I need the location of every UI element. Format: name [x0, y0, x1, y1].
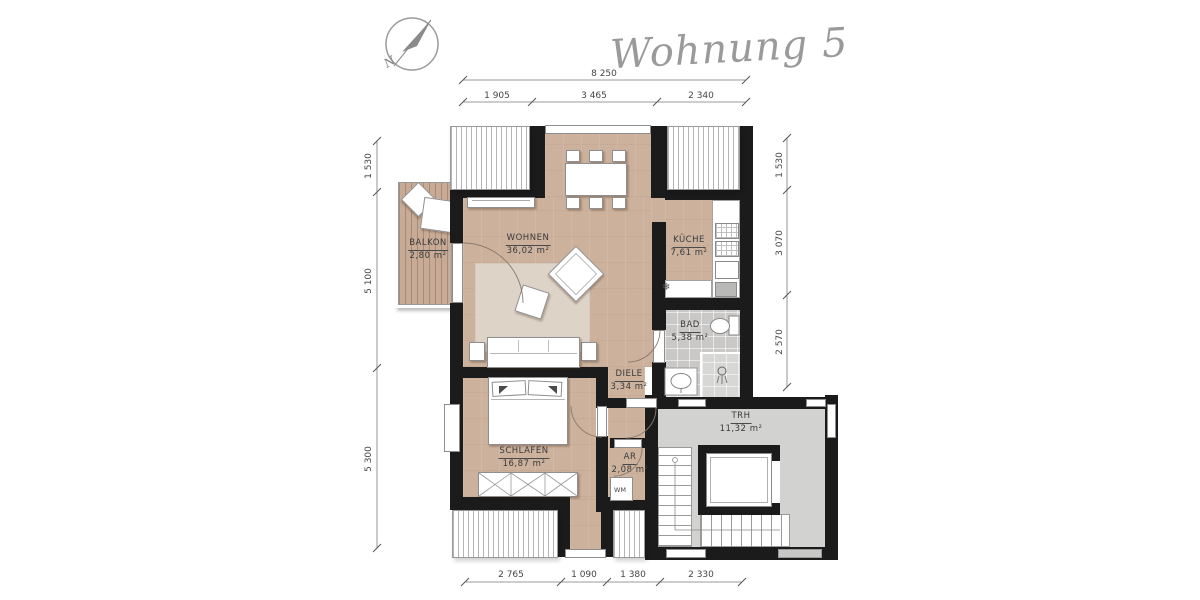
wall-segment	[652, 222, 666, 330]
room-name: WOHNEN	[506, 233, 551, 246]
wall-segment	[651, 126, 667, 198]
dining-table	[565, 163, 627, 196]
door-balcony	[452, 243, 463, 303]
wall-segment	[740, 310, 753, 402]
dim-top-total: 8 250	[591, 69, 617, 79]
window-dining	[545, 125, 651, 134]
dim-right-1: 3 070	[775, 230, 785, 256]
room-name: KÜCHE	[672, 235, 706, 248]
roof-hatch-band	[450, 126, 530, 190]
room-area: 16,87 m²	[503, 459, 546, 469]
dim-bottom-2: 1 380	[620, 570, 646, 580]
room-label-wohnen: WOHNEN 36,02 m²	[506, 233, 551, 258]
dim-left-1: 5 100	[364, 268, 374, 294]
dim-top-seg-1: 3 465	[581, 91, 607, 101]
dining-chair	[566, 150, 580, 162]
washing-machine: WM	[610, 477, 633, 501]
room-area: 3,34 m²	[611, 382, 648, 392]
dim-bottom-0: 2 765	[498, 570, 524, 580]
room-label-ar: AR 2,08 m²	[612, 452, 649, 477]
wardrobe	[478, 472, 578, 497]
dining-chair	[612, 197, 626, 209]
window-dormer	[565, 549, 606, 558]
kitchen-sink	[715, 261, 739, 279]
door-bad	[653, 330, 665, 363]
room-label-diele: DIELE 3,34 m²	[611, 369, 648, 394]
door-ar	[614, 439, 642, 448]
room-name: BAD	[679, 320, 701, 333]
dim-right-0: 1 530	[775, 152, 785, 178]
stove-icon	[715, 223, 739, 239]
north-compass-icon: N	[381, 18, 438, 71]
room-label-schlafen: SCHLAFEN 16,87 m²	[498, 446, 549, 471]
room-label-trh: TRH 11,32 m²	[720, 411, 763, 436]
dining-chair	[589, 197, 603, 209]
side-table	[469, 342, 485, 361]
dining-chair	[612, 150, 626, 162]
room-name: TRH	[730, 411, 751, 424]
stairs-flight	[658, 447, 692, 547]
elevator-door-gap	[772, 461, 780, 503]
dim-top-seg-0: 1 905	[484, 91, 510, 101]
compass-north-label: N	[381, 53, 398, 71]
pillow	[492, 380, 527, 397]
wall-segment	[645, 395, 658, 560]
room-name: SCHLAFEN	[498, 446, 549, 459]
wall-segment	[450, 497, 570, 510]
room-label-kueche: KÜCHE 7,61 m²	[671, 235, 708, 260]
stairs-flight	[700, 514, 790, 547]
dishwasher-icon	[715, 282, 737, 297]
oven-icon	[715, 241, 739, 257]
room-name: AR	[623, 452, 638, 465]
window-trh	[666, 549, 706, 558]
dim-left-0: 1 530	[364, 153, 374, 179]
room-label-balkon: BALKON 2,80 m²	[408, 238, 448, 263]
roof-hatch-band	[613, 510, 645, 558]
dining-chair	[589, 150, 603, 162]
wall-segment	[740, 126, 753, 310]
freezer-icon: ❄	[662, 282, 670, 293]
roof-hatch-band	[452, 510, 558, 558]
dim-bottom-3: 2 330	[688, 570, 714, 580]
sofa	[487, 337, 580, 368]
room-label-bad: BAD 5,38 m²	[672, 320, 709, 345]
window-trh	[806, 399, 826, 407]
door-entry	[626, 398, 657, 408]
dim-bottom-1: 1 090	[571, 570, 597, 580]
room-area: 2,80 m²	[410, 251, 447, 261]
side-table	[581, 342, 597, 361]
wall-segment	[530, 126, 545, 198]
room-area: 7,61 m²	[671, 248, 708, 258]
window-schlafen	[444, 404, 460, 452]
roof-hatch-band	[667, 126, 740, 190]
exterior-landing-strip	[778, 549, 822, 558]
dim-top-seg-2: 2 340	[688, 91, 714, 101]
washing-machine-label: WM	[614, 486, 626, 494]
wall-segment	[652, 298, 753, 310]
floor-shower	[700, 352, 742, 399]
room-area: 2,08 m²	[612, 465, 649, 475]
sideboard	[467, 197, 535, 208]
window-trh	[827, 404, 836, 438]
pillow	[528, 380, 563, 397]
room-area: 11,32 m²	[720, 424, 763, 434]
dim-left-2: 5 300	[364, 446, 374, 472]
kitchen-counter	[665, 280, 712, 298]
room-name: BALKON	[408, 238, 448, 251]
room-area: 36,02 m²	[507, 246, 550, 256]
plan-title: Wohnung 5	[609, 20, 849, 78]
door-schlafen	[597, 406, 607, 437]
dining-chair	[566, 197, 580, 209]
floorplan-canvas: ❄ WM BALKON 2,80 m² WOHNEN 36,02 m² KÜCH…	[0, 0, 1200, 600]
dim-right-2: 2 570	[775, 329, 785, 355]
elevator-car	[706, 453, 772, 507]
room-name: DIELE	[614, 369, 643, 382]
room-area: 5,38 m²	[672, 333, 709, 343]
window-trh	[678, 399, 706, 407]
